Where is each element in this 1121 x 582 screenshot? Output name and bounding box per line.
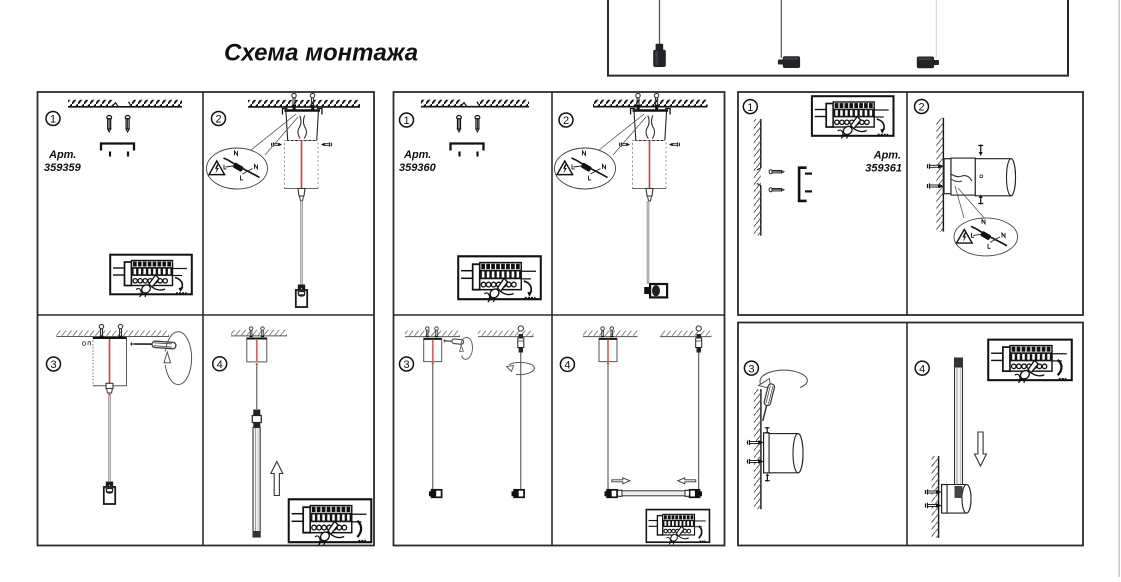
svg-text:3: 3 bbox=[403, 359, 409, 371]
svg-text:2: 2 bbox=[215, 114, 221, 126]
svg-text:4: 4 bbox=[919, 363, 925, 375]
svg-text:4: 4 bbox=[564, 360, 570, 372]
svg-text:1: 1 bbox=[50, 114, 56, 126]
svg-text:Арт.: Арт. bbox=[48, 149, 76, 161]
svg-text:1: 1 bbox=[747, 102, 753, 114]
svg-text:1: 1 bbox=[403, 115, 409, 127]
svg-text:2: 2 bbox=[918, 102, 924, 114]
svg-text:3: 3 bbox=[748, 363, 754, 375]
svg-text:Арт.: Арт. bbox=[873, 150, 901, 162]
svg-text:359361: 359361 bbox=[865, 163, 902, 175]
svg-text:359360: 359360 bbox=[399, 162, 437, 174]
svg-text:3: 3 bbox=[50, 359, 56, 371]
svg-text:Схема монтажа: Схема монтажа bbox=[224, 40, 418, 67]
svg-text:4: 4 bbox=[217, 359, 223, 371]
svg-text:359359: 359359 bbox=[44, 162, 82, 174]
svg-text:2: 2 bbox=[563, 115, 569, 127]
svg-text:Арт.: Арт. bbox=[403, 149, 431, 161]
